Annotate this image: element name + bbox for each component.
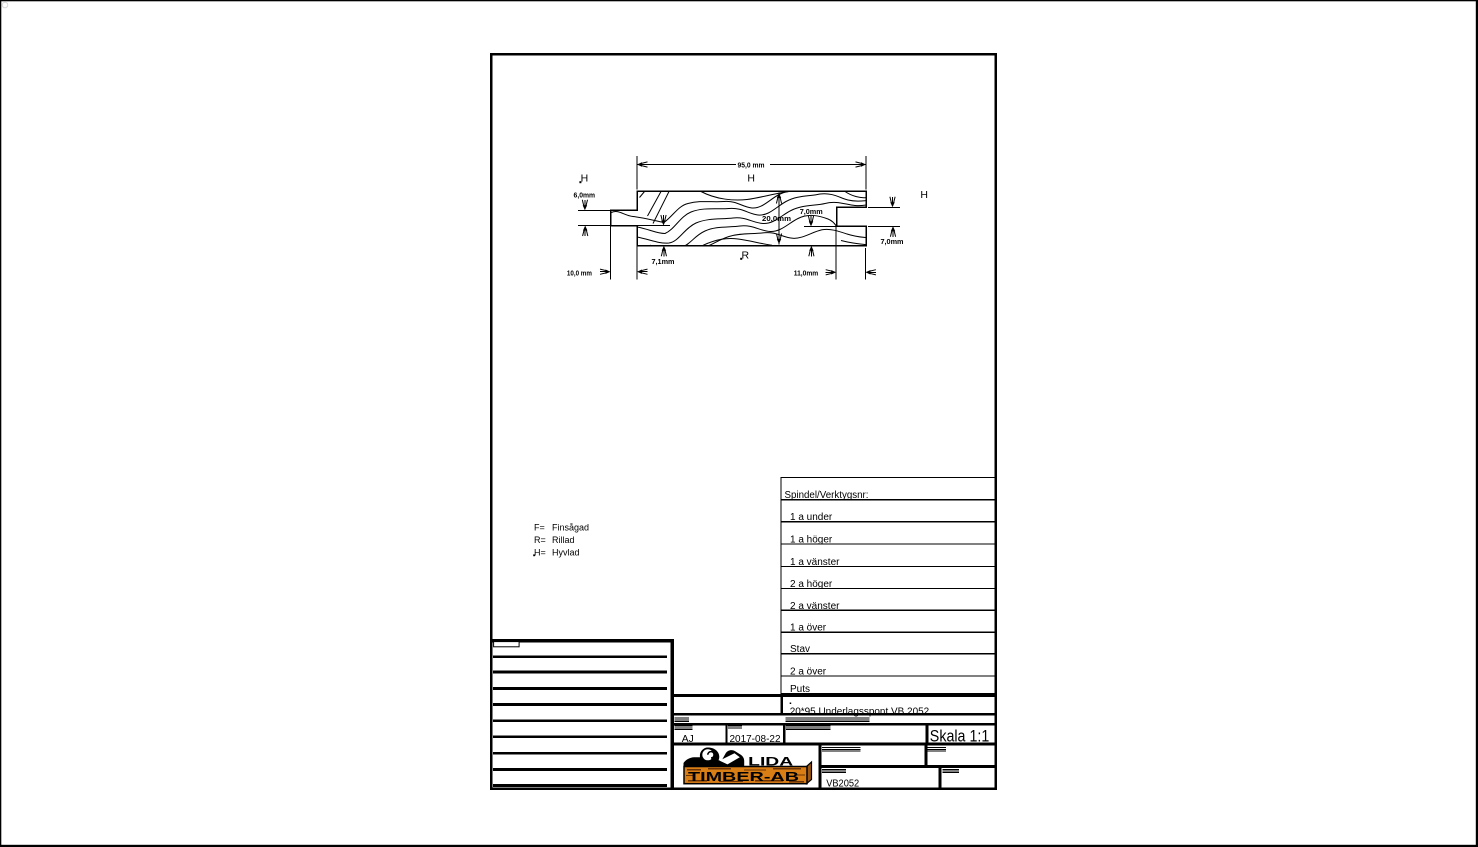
- svg-text:7,1mm: 7,1mm: [652, 257, 675, 266]
- svg-text:VB2052: VB2052: [826, 778, 859, 789]
- svg-text:95,0 mm: 95,0 mm: [738, 160, 765, 169]
- svg-text:TIMBER-AB: TIMBER-AB: [688, 769, 799, 784]
- svg-text:10,0 mm: 10,0 mm: [567, 268, 592, 277]
- svg-text:7,0mm: 7,0mm: [800, 207, 823, 216]
- svg-text:Rillad: Rillad: [552, 535, 575, 545]
- svg-text:H: H: [747, 172, 755, 184]
- svg-text:2 a höger: 2 a höger: [790, 579, 833, 590]
- svg-text:20*95 Underlagsspont VB 2052: 20*95 Underlagsspont VB 2052: [790, 705, 930, 717]
- svg-text:H: H: [581, 173, 589, 185]
- svg-text:2 a vänster: 2 a vänster: [790, 601, 840, 612]
- svg-text:1 a över: 1 a över: [790, 623, 827, 634]
- svg-text:H=: H=: [534, 547, 546, 557]
- svg-text:AJ: AJ: [682, 734, 694, 745]
- svg-text:6,0mm: 6,0mm: [574, 191, 596, 200]
- svg-text:Spindel/Verktygsnr:: Spindel/Verktygsnr:: [785, 490, 869, 501]
- svg-text:H: H: [920, 189, 928, 201]
- svg-text:11,0mm: 11,0mm: [794, 268, 819, 277]
- svg-text:LIDA: LIDA: [748, 757, 793, 769]
- svg-text:1 a höger: 1 a höger: [790, 534, 833, 545]
- svg-text:Puts: Puts: [790, 684, 810, 695]
- svg-text:F=: F=: [534, 523, 545, 533]
- svg-text:2017-08-22: 2017-08-22: [730, 734, 781, 745]
- svg-text:Skala 1:1: Skala 1:1: [930, 728, 990, 746]
- svg-text:2 a över: 2 a över: [790, 667, 827, 678]
- svg-text:1 a under: 1 a under: [790, 512, 833, 523]
- svg-text:7,0mm: 7,0mm: [881, 237, 904, 246]
- svg-text:Hyvlad: Hyvlad: [552, 547, 580, 557]
- svg-text:R: R: [742, 250, 750, 262]
- svg-text:Stav: Stav: [790, 644, 810, 655]
- svg-text:1 a vänster: 1 a vänster: [790, 557, 840, 568]
- svg-text:R=: R=: [534, 535, 546, 545]
- svg-text:20,0mm: 20,0mm: [762, 214, 791, 223]
- svg-text:Finsågad: Finsågad: [552, 523, 589, 533]
